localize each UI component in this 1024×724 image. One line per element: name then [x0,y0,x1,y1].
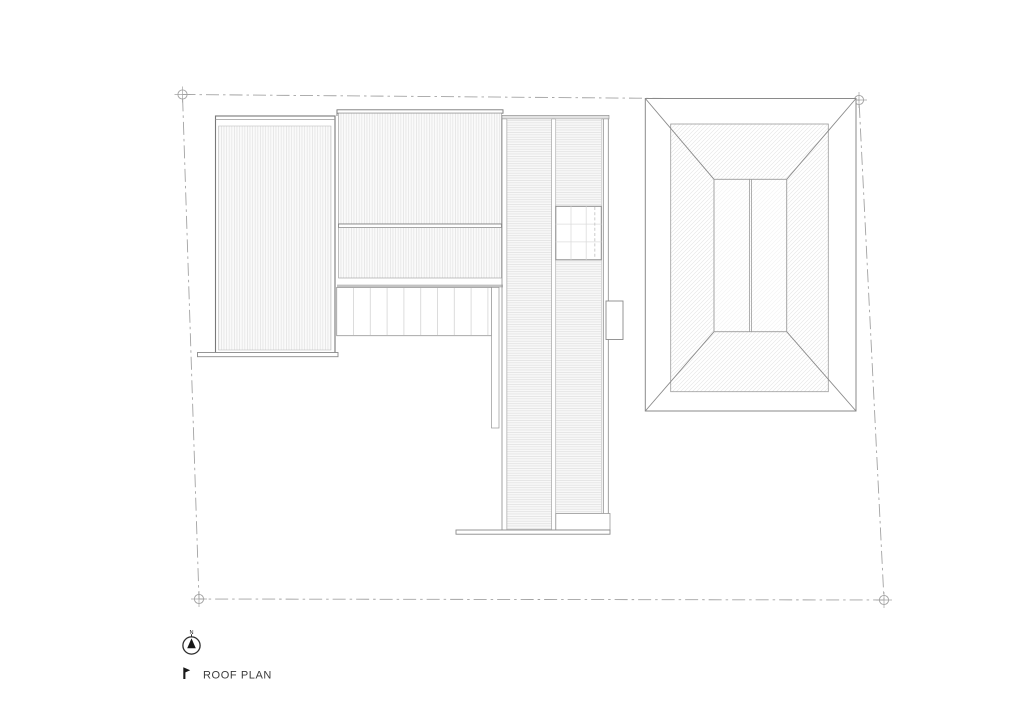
spine-skylight-grid [556,206,602,259]
roof-plan-canvas: N ROOF PLAN [0,0,1024,724]
boundary-marker-bottom-right [876,592,892,608]
boundary-marker-bottom-left [191,591,207,607]
central-wing-ridge-band [339,224,502,228]
roof-plan-sheet: N ROOF PLAN [0,0,1024,724]
north-label: N [189,630,193,636]
flag-icon [183,667,190,679]
drawing-title-label: ROOF PLAN [203,670,272,682]
drawing-title: ROOF PLAN [183,667,272,681]
pergola-slatted-canopy [337,287,499,428]
hip-roof-flat-panel [714,179,787,331]
central-wing-hatch-upper [339,113,502,224]
central-wing-parapet [337,110,503,113]
pergola-side-strip [492,287,500,428]
spine-strip-right-hatch [556,119,602,514]
spine-top-cap [502,115,609,119]
spine-strip-left-hatch [507,119,552,530]
north-arrow-icon: N [183,630,200,654]
pergola-outline [337,287,492,335]
spine-side-box [606,301,623,340]
central-wing-hatch-lower [339,228,502,278]
boundary-marker-top-left [175,87,191,103]
left-wing-roof [198,116,339,357]
spine-bottom-box [556,514,610,531]
central-wing-roof [337,110,503,288]
left-wing-eave-bar [198,353,339,357]
terrace-plinth-edge [456,530,610,534]
central-wing-gutter-band [337,285,503,288]
left-wing-hatch [219,126,332,350]
hip-roof-outbuilding [645,99,856,412]
